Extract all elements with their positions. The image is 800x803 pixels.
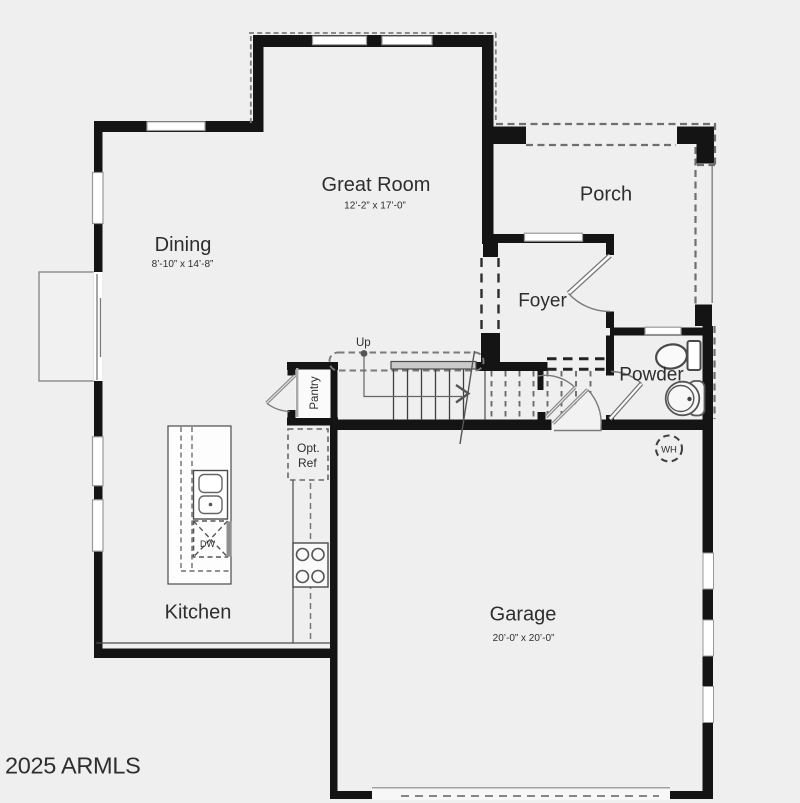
svg-text:20’-0” x 20’-0”: 20’-0” x 20’-0” — [493, 633, 555, 644]
svg-text:Garage: Garage — [490, 604, 557, 626]
svg-text:DW: DW — [200, 539, 215, 549]
svg-text:Powder: Powder — [619, 365, 684, 386]
svg-text:8’-10” x 14’-8”: 8’-10” x 14’-8” — [152, 259, 214, 270]
svg-text:WH: WH — [661, 445, 677, 456]
svg-text:Pantry: Pantry — [309, 376, 321, 409]
svg-text:2025 ARMLS: 2025 ARMLS — [5, 753, 140, 779]
svg-text:Foyer: Foyer — [518, 291, 567, 312]
svg-text:Ref: Ref — [298, 456, 317, 470]
svg-text:Dining: Dining — [155, 234, 212, 256]
svg-text:Porch: Porch — [580, 184, 632, 206]
svg-text:Opt.: Opt. — [297, 441, 320, 455]
svg-text:Great Room: Great Room — [322, 174, 431, 196]
svg-text:Up: Up — [356, 337, 371, 349]
svg-text:12’-2” x 17’-0”: 12’-2” x 17’-0” — [344, 201, 406, 212]
svg-text:Kitchen: Kitchen — [165, 602, 232, 624]
